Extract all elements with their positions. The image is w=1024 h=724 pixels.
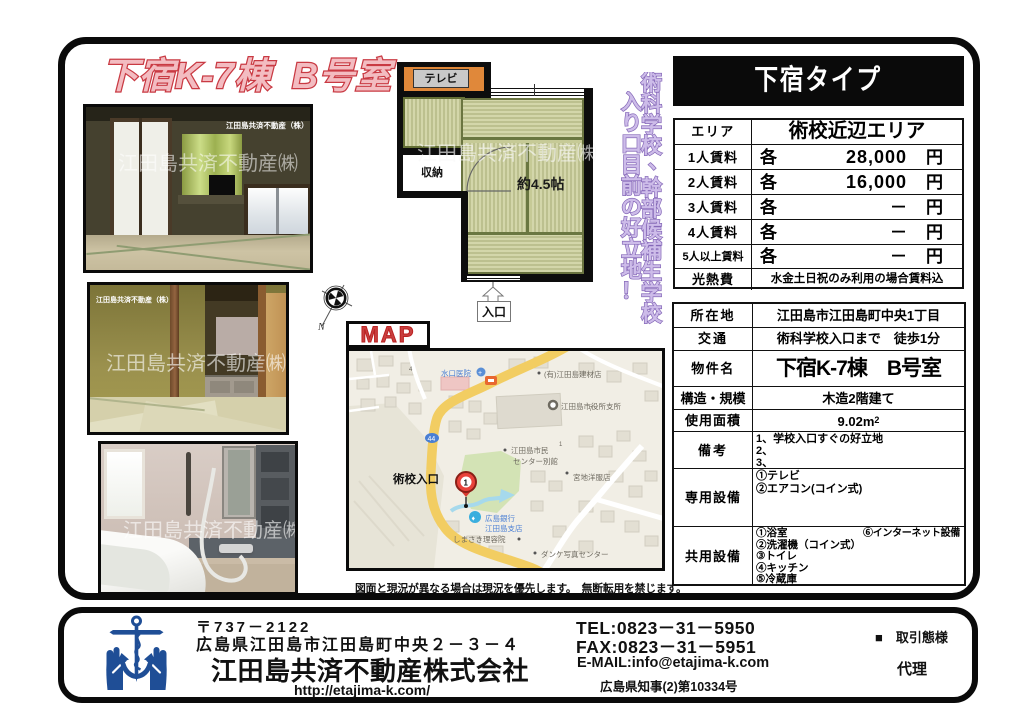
svg-text:学: 学	[641, 113, 662, 137]
svg-text:生: 生	[641, 260, 662, 284]
svg-text:目: 目	[621, 154, 642, 177]
svg-text:入: 入	[621, 91, 642, 114]
svg-text:江田島支店: 江田島支店	[485, 523, 523, 533]
svg-text:、: 、	[648, 150, 664, 173]
svg-text:宮地洋服店: 宮地洋服店	[573, 472, 611, 482]
svg-text:水口医院: 水口医院	[441, 368, 471, 378]
svg-text:下宿K-7棟 B号室: 下宿K-7棟 B号室	[102, 55, 396, 96]
svg-text:口: 口	[621, 133, 642, 156]
svg-text:広島銀行: 広島銀行	[485, 513, 515, 523]
svg-text:学: 学	[641, 281, 662, 305]
svg-text:科: 科	[641, 92, 662, 116]
svg-text:江田島市民: 江田島市民	[511, 445, 549, 455]
svg-text:(有)江田島建材店: (有)江田島建材店	[544, 369, 602, 379]
svg-text:44: 44	[428, 436, 436, 443]
svg-text:校: 校	[641, 302, 663, 326]
svg-text:しまさき理容院: しまさき理容院	[453, 534, 506, 544]
svg-text:+: +	[478, 370, 482, 377]
svg-text:部: 部	[641, 197, 662, 221]
svg-text:候: 候	[641, 219, 663, 242]
svg-text:幹: 幹	[641, 176, 663, 200]
svg-text:好: 好	[620, 216, 642, 240]
svg-text:センター別館: センター別館	[513, 456, 558, 466]
svg-text:術校入口: 術校入口	[392, 472, 439, 486]
svg-text:！: ！	[621, 280, 642, 303]
svg-text:り: り	[621, 112, 642, 135]
svg-text:前: 前	[621, 174, 642, 198]
svg-text:ダンケ写真センター: ダンケ写真センター	[541, 549, 609, 559]
svg-text:立: 立	[621, 237, 642, 261]
svg-text:地: 地	[621, 258, 642, 282]
svg-text:の: の	[621, 196, 642, 219]
svg-text:♦: ♦	[472, 516, 476, 523]
svg-text:1: 1	[464, 479, 469, 488]
svg-text:N: N	[317, 322, 326, 333]
